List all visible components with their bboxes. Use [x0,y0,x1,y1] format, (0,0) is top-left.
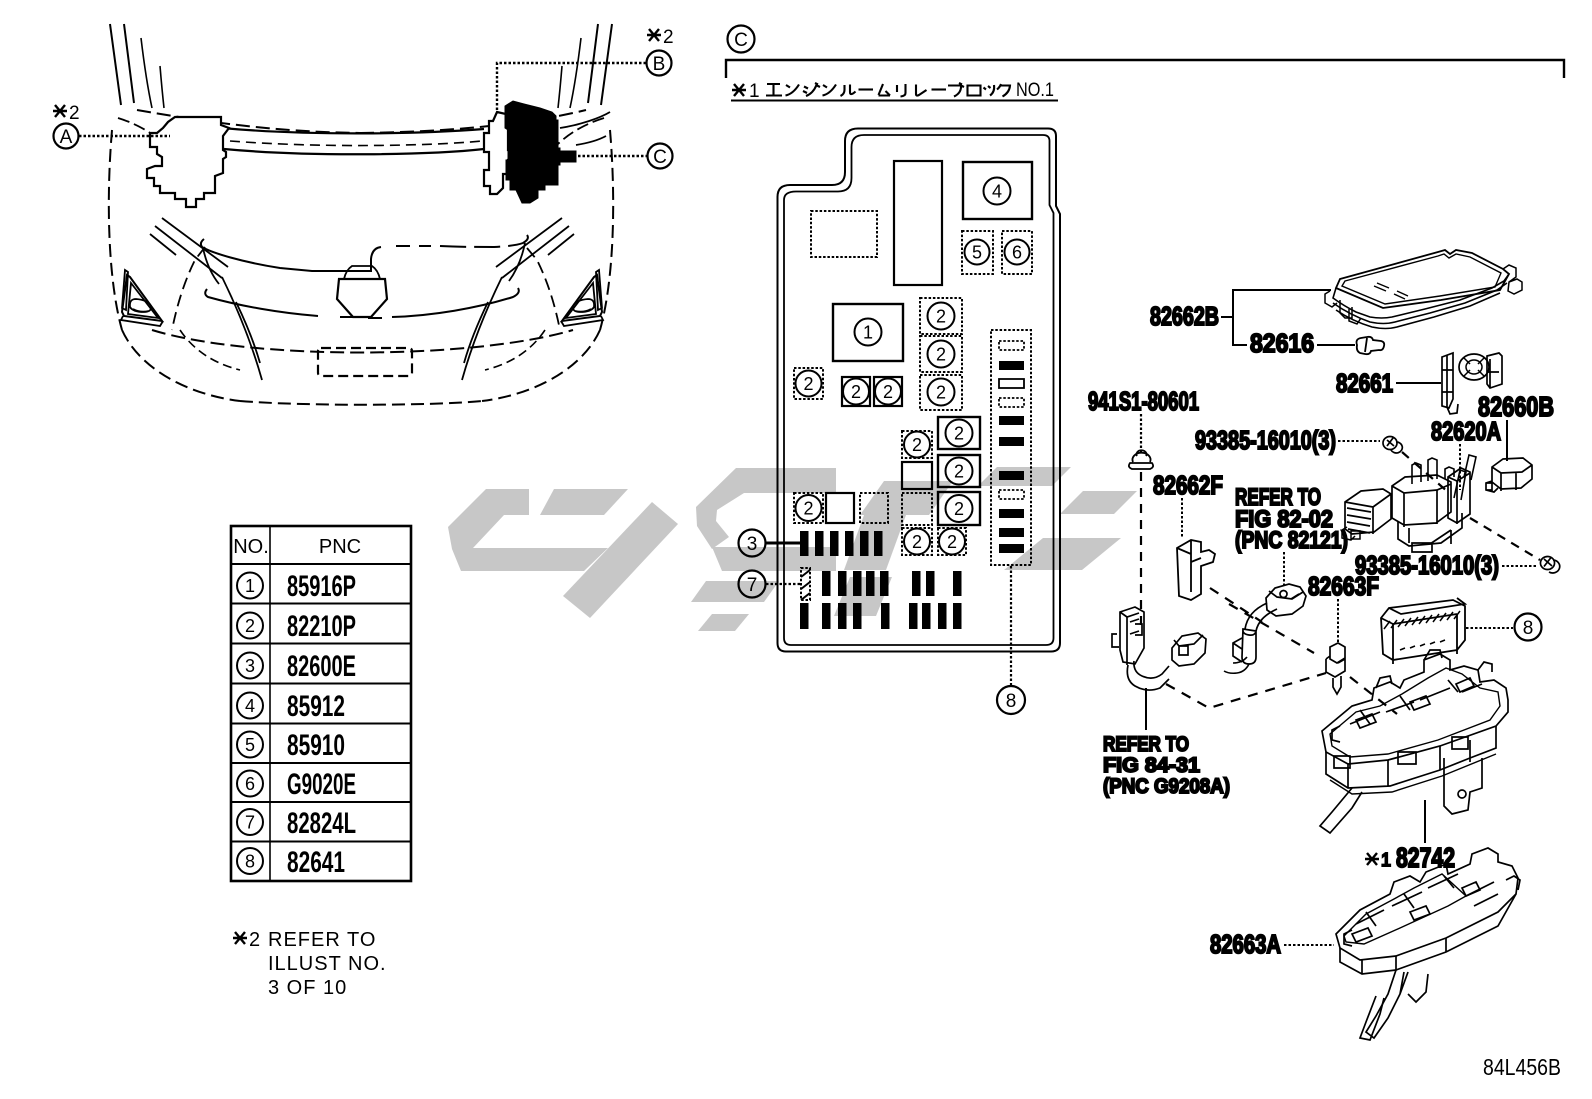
svg-text:82620A: 82620A [1431,416,1501,446]
svg-text:1: 1 [1381,850,1391,870]
svg-text:2: 2 [954,462,964,482]
svg-text:3: 3 [747,534,758,555]
svg-text:82641: 82641 [287,846,345,879]
svg-text:5: 5 [245,735,255,755]
svg-text:6: 6 [245,774,255,794]
svg-text:1: 1 [863,323,873,343]
svg-text:3: 3 [245,656,255,676]
svg-text:2: 2 [249,929,260,951]
svg-text:85910: 85910 [287,729,345,762]
svg-text:2: 2 [936,345,946,365]
svg-text:2: 2 [954,424,964,444]
svg-text:8: 8 [245,852,255,872]
svg-text:2: 2 [936,383,946,403]
svg-text:2: 2 [803,374,813,394]
svg-text:85916P: 85916P [287,570,356,603]
svg-text:2: 2 [69,103,80,124]
svg-text:2: 2 [912,435,922,455]
svg-text:7: 7 [747,575,758,596]
svg-text:B: B [653,54,666,75]
svg-text:2: 2 [851,382,861,402]
svg-text:2: 2 [245,616,255,636]
svg-text:1: 1 [749,81,760,102]
svg-text:4: 4 [992,182,1002,202]
svg-text:82662B: 82662B [1150,301,1219,331]
svg-text:82662F: 82662F [1153,470,1223,500]
svg-text:2: 2 [954,499,964,519]
svg-text:7: 7 [245,813,255,833]
svg-text:5: 5 [972,243,982,263]
svg-text:4: 4 [245,696,255,716]
svg-text:REFER TO: REFER TO [268,929,376,951]
svg-text:82210P: 82210P [287,610,356,643]
svg-text:ILLUST NO.: ILLUST NO. [268,953,387,975]
svg-text:NO.1: NO.1 [1016,80,1054,101]
svg-text:2: 2 [803,499,813,519]
svg-text:6: 6 [1012,243,1022,263]
svg-text:82663F: 82663F [1308,571,1379,601]
svg-text:941S1-80601: 941S1-80601 [1088,386,1199,416]
svg-text:C: C [653,147,667,168]
svg-text:C: C [734,30,748,51]
svg-text:REFER TO: REFER TO [1103,733,1189,756]
svg-text:3 OF 10: 3 OF 10 [268,977,347,999]
svg-text:82616: 82616 [1250,328,1314,358]
svg-text:82661: 82661 [1336,368,1393,398]
svg-text:82824L: 82824L [287,807,356,840]
svg-text:93385-16010(3): 93385-16010(3) [1195,425,1336,455]
svg-text:85912: 85912 [287,690,345,723]
svg-text:(PNC G9208A): (PNC G9208A) [1103,775,1230,798]
svg-text:G9020E: G9020E [287,768,356,801]
svg-text:84L456B: 84L456B [1483,1054,1561,1080]
svg-text:A: A [60,127,73,148]
svg-text:2: 2 [883,382,893,402]
svg-text:(PNC 82121): (PNC 82121) [1235,527,1348,554]
svg-text:2: 2 [936,307,946,327]
svg-text:NO.: NO. [233,536,269,558]
svg-text:8: 8 [1523,618,1534,639]
svg-text:8: 8 [1006,691,1017,712]
svg-text:2: 2 [947,532,957,552]
svg-text:FIG 84-31: FIG 84-31 [1103,754,1200,777]
svg-text:1: 1 [245,576,255,596]
svg-text:PNC: PNC [319,536,361,558]
svg-text:82663A: 82663A [1210,929,1281,959]
svg-text:82600E: 82600E [287,650,356,683]
svg-text:2: 2 [912,532,922,552]
svg-text:2: 2 [663,27,674,48]
